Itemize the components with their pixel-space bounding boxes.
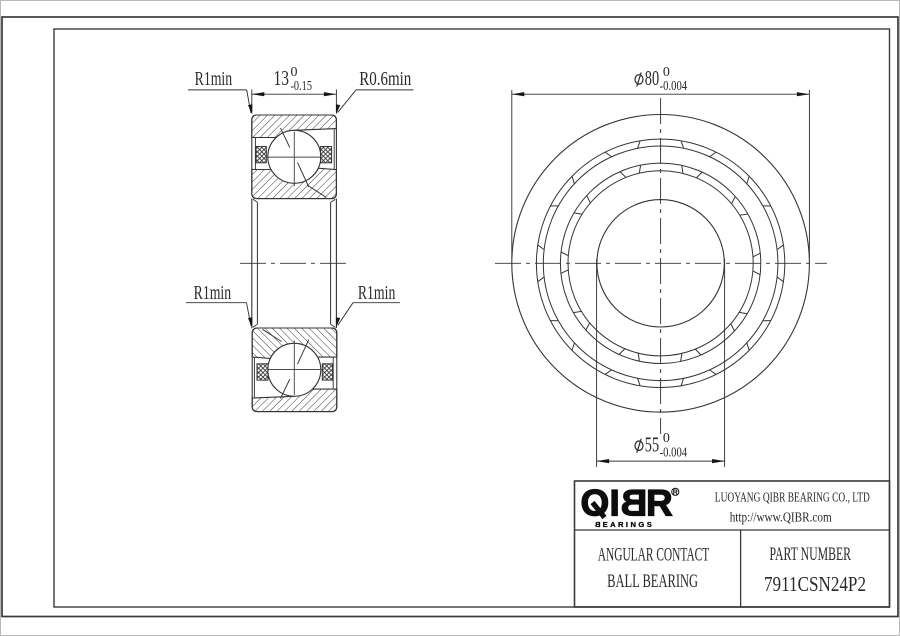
svg-text:7911CSN24P2: 7911CSN24P2 [764, 572, 866, 596]
svg-text:R1min: R1min [358, 282, 396, 304]
svg-text:B: B [594, 520, 600, 529]
svg-text:-0.004: -0.004 [660, 79, 688, 94]
svg-text:R1min: R1min [194, 282, 232, 304]
svg-text:ANGULAR CONTACT: ANGULAR CONTACT [598, 545, 710, 566]
svg-text:55: 55 [645, 433, 659, 457]
svg-text:BALL BEARING: BALL BEARING [607, 571, 698, 592]
svg-text:LUOYANG QIBR BEARING CO., LTD: LUOYANG QIBR BEARING CO., LTD [715, 490, 870, 505]
svg-text:-0.004: -0.004 [660, 446, 688, 461]
svg-text:-0.15: -0.15 [291, 79, 313, 94]
svg-text:R: R [673, 489, 678, 496]
svg-text:80: 80 [645, 66, 659, 90]
svg-text:R: R [646, 483, 673, 524]
svg-text:0: 0 [663, 431, 670, 446]
svg-text:R1min: R1min [195, 68, 233, 90]
svg-text:R0.6min: R0.6min [359, 68, 411, 90]
svg-text:0: 0 [663, 65, 670, 80]
svg-text:0: 0 [291, 65, 298, 80]
svg-text:http://www.QIBR.com: http://www.QIBR.com [730, 510, 832, 525]
svg-text:I: I [610, 483, 620, 524]
svg-text:B: B [620, 483, 647, 524]
svg-text:13: 13 [274, 66, 290, 90]
svg-text:PART NUMBER: PART NUMBER [770, 544, 852, 565]
